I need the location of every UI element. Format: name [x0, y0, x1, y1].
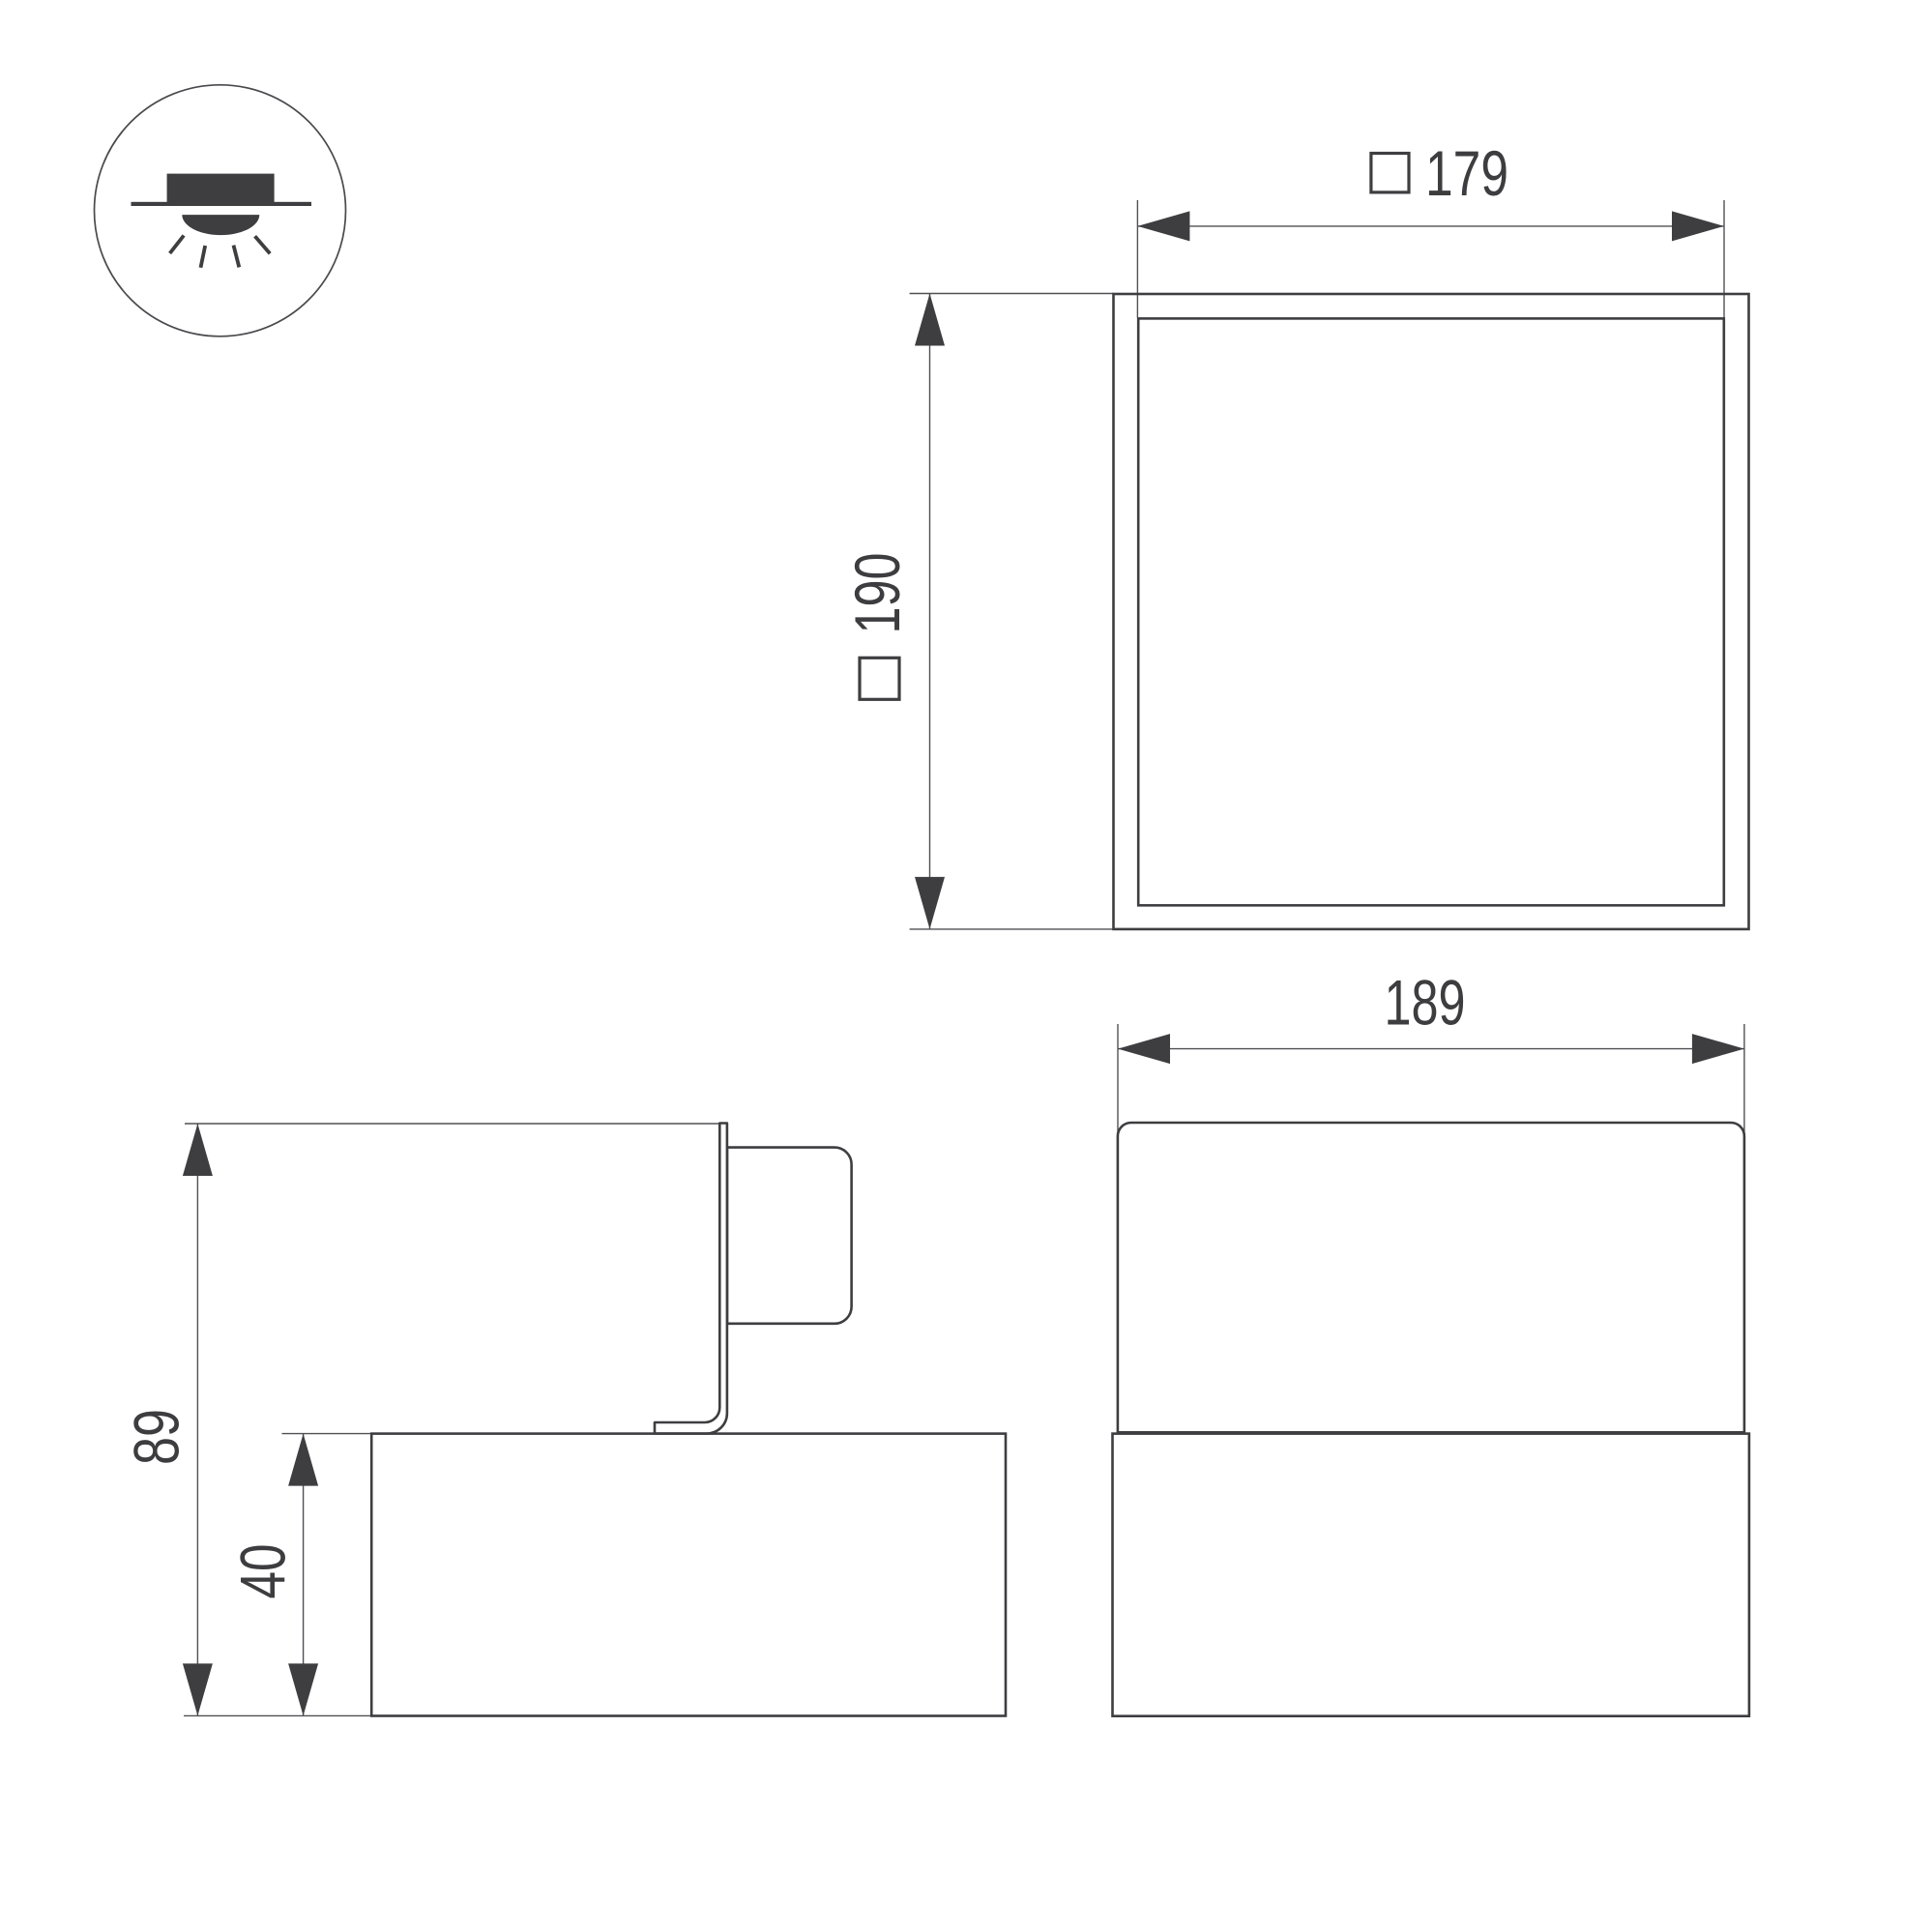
- svg-text:40: 40: [227, 1544, 299, 1599]
- svg-text:179: 179: [1425, 137, 1508, 209]
- svg-text:189: 189: [1385, 967, 1466, 1039]
- svg-text:190: 190: [841, 553, 913, 634]
- svg-text:89: 89: [121, 1409, 192, 1465]
